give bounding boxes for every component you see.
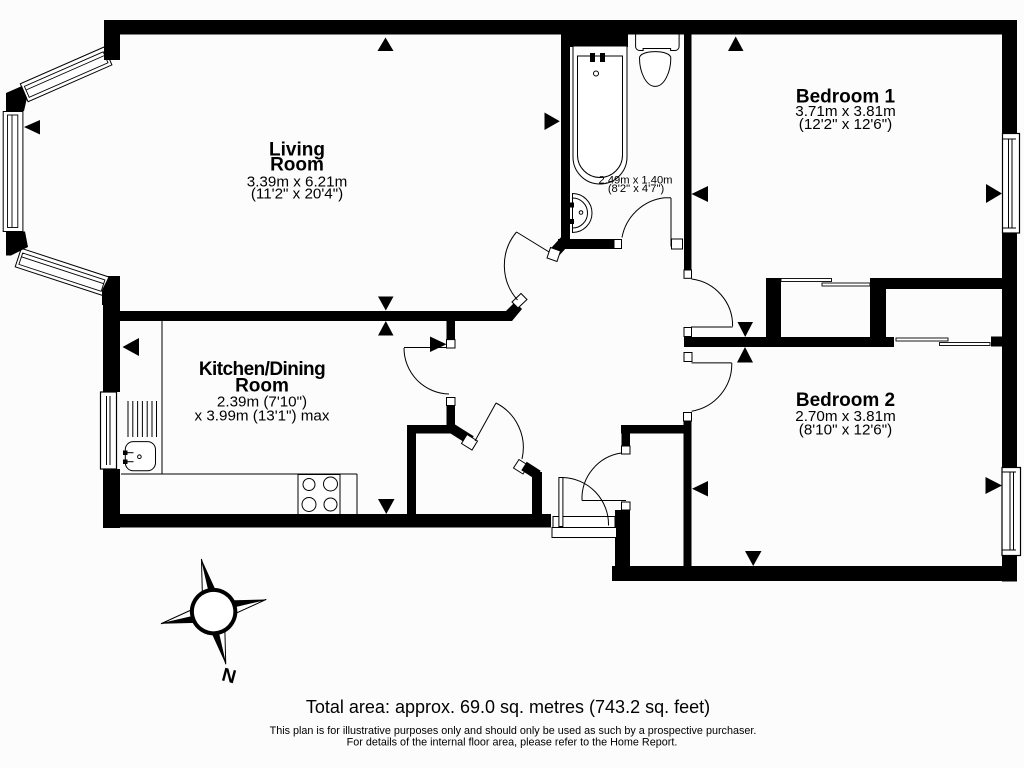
svg-text:Total area: approx. 69.0 sq. m: Total area: approx. 69.0 sq. metres (743…: [306, 697, 710, 717]
svg-text:This plan is for illustrative: This plan is for illustrative purposes o…: [270, 725, 757, 737]
svg-text:For details of the internal fl: For details of the internal floor area, …: [347, 737, 678, 749]
svg-text:x 3.99m (13'1") max: x 3.99m (13'1") max: [195, 407, 330, 424]
svg-text:(8'2" x 4'7"): (8'2" x 4'7"): [608, 183, 665, 195]
svg-text:(12'2" x 12'6"): (12'2" x 12'6"): [799, 116, 892, 133]
svg-text:(8'10" x 12'6"): (8'10" x 12'6"): [799, 421, 892, 438]
svg-text:(11'2" x 20'4"): (11'2" x 20'4"): [251, 185, 343, 202]
svg-text:Room: Room: [270, 154, 324, 175]
